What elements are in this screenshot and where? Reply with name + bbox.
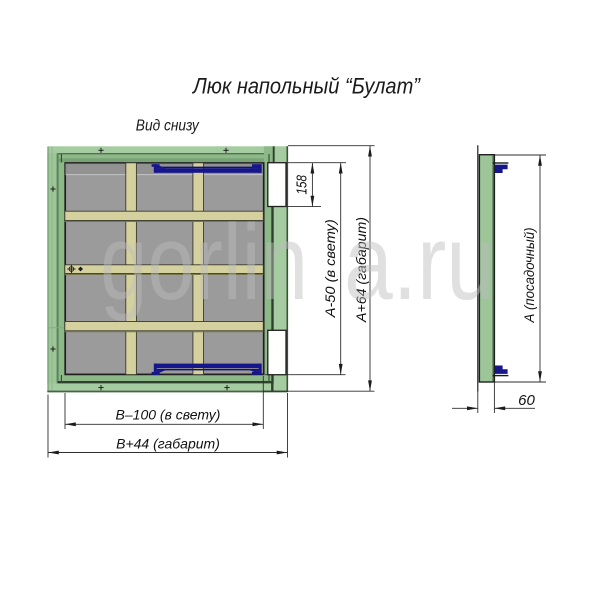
svg-text:Люк напольный “Булат”: Люк напольный “Булат”: [191, 74, 421, 99]
svg-text:a.ru: a.ru: [344, 202, 495, 322]
svg-text:В–100 (в свету): В–100 (в свету): [116, 407, 221, 423]
svg-text:60: 60: [518, 392, 535, 409]
svg-text:158: 158: [294, 174, 311, 194]
svg-text:А-50 (в свету): А-50 (в свету): [322, 219, 338, 318]
svg-text:gorlin: gorlin: [100, 202, 308, 322]
svg-text:Вид снизу: Вид снизу: [136, 118, 200, 135]
svg-text:В+44 (габарит): В+44 (габарит): [116, 436, 220, 452]
svg-text:А (посадочный): А (посадочный): [521, 228, 537, 324]
